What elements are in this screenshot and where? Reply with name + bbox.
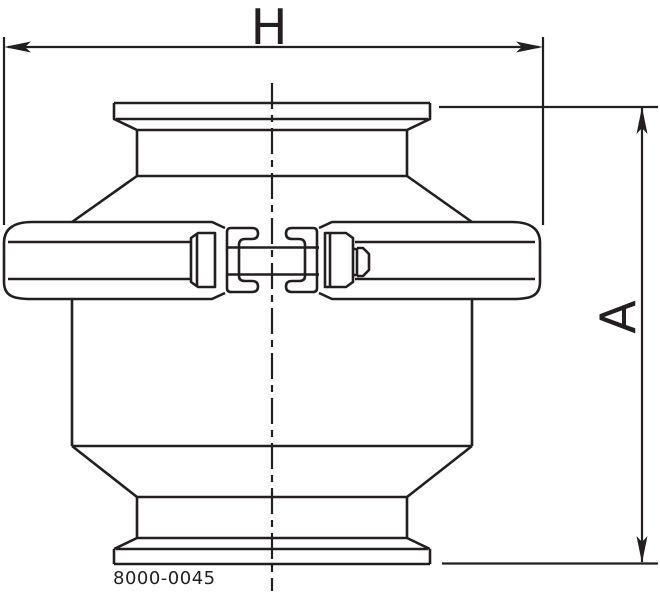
clamp-bolt-tip [353, 248, 369, 276]
dimension-h-label: H [251, 0, 288, 56]
dimension-a-label: A [590, 300, 647, 334]
dimension-h: H [4, 0, 543, 225]
part-number: 8000-0045 [113, 568, 216, 589]
clamp-band-right-inner-edges [355, 242, 535, 279]
clamp-lug-left [227, 228, 258, 292]
technical-drawing: H A 8000-0045 [0, 0, 660, 592]
clamp-band-left-inner-edges [8, 242, 190, 279]
clamp-lug-right [286, 228, 317, 292]
clamp-trunnion-block-right [325, 233, 353, 287]
clamp-trunnion-block-left [191, 233, 215, 287]
